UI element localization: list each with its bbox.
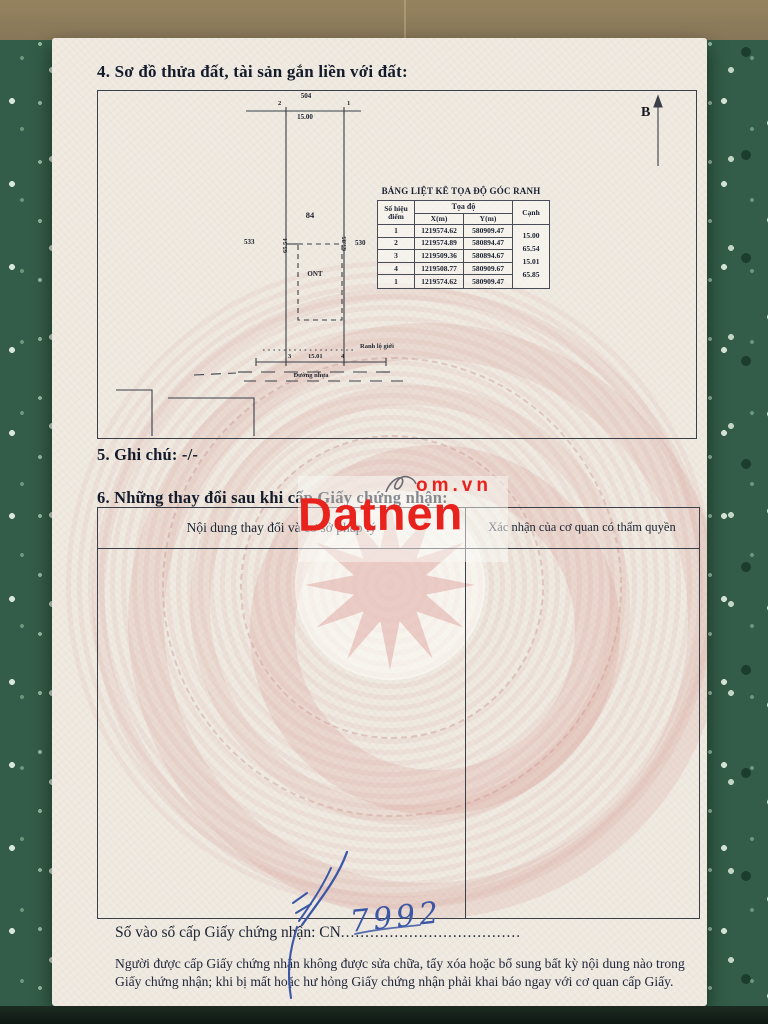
y-cell: 580909.47 (464, 225, 513, 238)
coordinate-table-title: BẢNG LIỆT KÊ TỌA ĐỘ GÓC RANH (375, 186, 547, 196)
land-use-code-label: ONT (300, 270, 330, 278)
col-header-y: Y(m) (464, 214, 513, 225)
changes-table: Nội dung thay đổi và cơ sở pháp lý Xác n… (97, 507, 700, 919)
wall-strip (0, 0, 768, 40)
bottom-edge-length: 15.01 (308, 353, 323, 360)
x-cell: 1219574.62 (415, 225, 464, 238)
setback-line-label: Ranh lộ giới (360, 343, 394, 350)
watermark-brand-logo: Datnen (298, 485, 464, 541)
edge-length: 15.01 (513, 258, 549, 266)
column-divider (465, 508, 466, 918)
point-cell: 2 (378, 238, 415, 251)
y-cell: 580909.47 (464, 275, 513, 288)
y-cell: 580909.67 (464, 263, 513, 276)
section5-title: 5. Ghi chú: -/- (97, 445, 198, 465)
footer-note-line2: Giấy chứng nhận; khi bị mất hoặc hư hỏng… (115, 974, 701, 990)
col-header-x: X(m) (415, 214, 464, 225)
certificate-page: 4. Sơ đồ thửa đất, tài sản gắn liền với … (52, 38, 707, 1006)
corner-point-3: 3 (288, 353, 291, 360)
point-cell: 1 (378, 225, 415, 238)
top-edge-length: 15.00 (288, 113, 322, 121)
edge-length: 65.54 (513, 245, 549, 253)
serial-number-line: Số vào sổ cấp Giấy chứng nhận: CN.......… (115, 924, 519, 942)
wall-crack-line (404, 0, 406, 40)
corner-point-2: 2 (278, 100, 281, 107)
edge-length: 65.85 (513, 271, 549, 279)
north-arrow-label: B (641, 105, 650, 121)
point-cell: 3 (378, 250, 415, 263)
x-cell: 1219574.89 (415, 238, 464, 251)
parcel-diagram-box: B 504 15.00 2 1 84 533 65.54 65.85 530 O… (97, 90, 697, 439)
x-cell: 1219574.62 (415, 275, 464, 288)
edge-lengths: 15.00 65.54 15.01 65.85 (513, 225, 549, 288)
left-edge-length: 65.54 (282, 238, 289, 253)
col-header-coords: Tọa độ (415, 201, 513, 214)
corner-point-4: 4 (341, 353, 344, 360)
point-cell: 4 (378, 263, 415, 276)
y-cell: 580894.47 (464, 238, 513, 251)
y-cell: 580894.67 (464, 250, 513, 263)
neighbor-parcel-top: 504 (294, 92, 318, 100)
section4-title: 4. Sơ đồ thửa đất, tài sản gắn liền với … (97, 62, 408, 82)
right-edge-length: 65.85 (341, 236, 348, 251)
footer-note-line1: Người được cấp Giấy chứng nhận không đượ… (115, 956, 701, 972)
corner-point-1: 1 (347, 100, 350, 107)
col-header-edge: Cạnh (513, 201, 549, 225)
x-cell: 1219508.77 (415, 263, 464, 276)
coordinate-table: Số hiệu điểm Tọa độ X(m) Y(m) Cạnh 1 121… (377, 200, 550, 289)
serial-label: Số vào sổ cấp Giấy chứng nhận: CN (115, 924, 341, 941)
neighbor-parcel-right: 530 (355, 239, 366, 247)
point-cell: 1 (378, 275, 415, 288)
floor-shadow-strip (0, 1006, 768, 1024)
neighbor-parcel-left: 533 (244, 238, 255, 246)
parcel-number-label: 84 (298, 210, 322, 220)
road-label: Đường nhựa (281, 372, 341, 379)
col-header-point: Số hiệu điểm (378, 201, 415, 225)
edge-length: 15.00 (513, 232, 549, 240)
x-cell: 1219509.36 (415, 250, 464, 263)
